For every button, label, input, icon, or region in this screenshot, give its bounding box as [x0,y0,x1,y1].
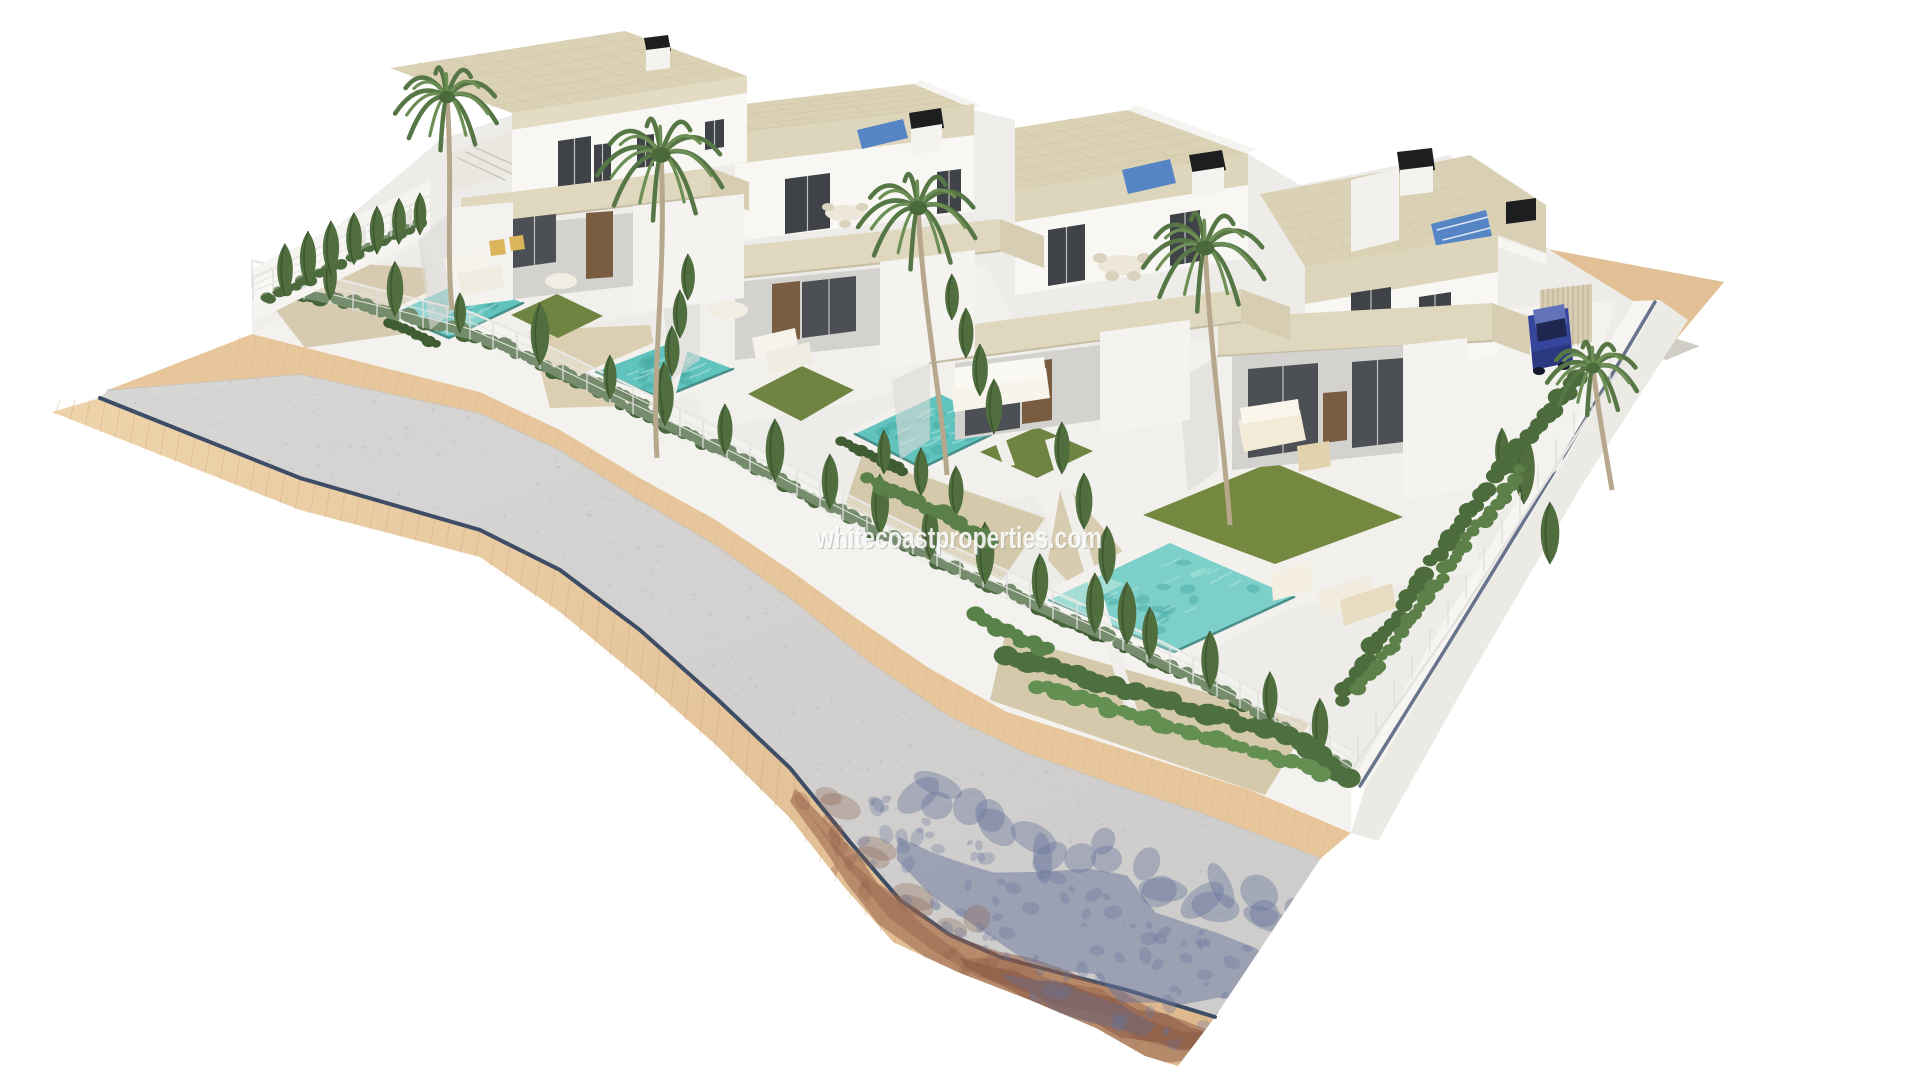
svg-text:whitecoastproperties.com: whitecoastproperties.com [815,520,1102,555]
